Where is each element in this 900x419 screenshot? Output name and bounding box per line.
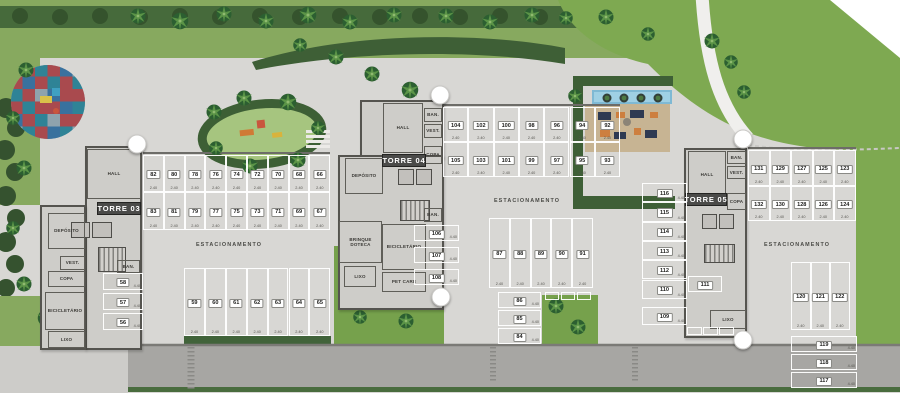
parking-space-131: 1312.40 xyxy=(748,150,770,186)
parking-space xyxy=(687,327,702,335)
stall-dimension: 2.40 xyxy=(545,171,568,175)
stall-dimension: 2.40 xyxy=(206,224,225,228)
parking-space-number: 81 xyxy=(168,208,181,217)
parking-space-62: 622.40 xyxy=(247,268,268,336)
parking-space-124: 1242.40 xyxy=(834,186,856,221)
estacionamento-label: ESTACIONAMENTO xyxy=(494,198,560,204)
parking-space-56: 564.40 xyxy=(103,313,143,330)
stall-dimension: 4.40 xyxy=(450,257,457,261)
parking-space-67: 672.40 xyxy=(309,192,330,230)
parking-space-number: 131 xyxy=(751,165,767,174)
parking-space-number: 85 xyxy=(513,315,526,324)
room-dep-sito: DEPÓSITO xyxy=(48,213,85,249)
estacionamento-label: ESTACIONAMENTO xyxy=(764,242,830,248)
parking-space-number: 119 xyxy=(816,341,832,350)
room-vest: VEST. xyxy=(727,166,746,179)
parking-space-98: 982.40 xyxy=(519,107,544,142)
location-marker[interactable] xyxy=(734,130,753,149)
stall-dimension: 4.40 xyxy=(678,254,685,258)
parking-space-58: 584.40 xyxy=(103,273,143,290)
stall-dimension: 2.40 xyxy=(814,180,834,184)
stall-dimension: 2.40 xyxy=(831,324,849,328)
parking-space-69: 692.40 xyxy=(289,192,310,230)
parking-space-number: 82 xyxy=(147,170,160,179)
parking-space-number: 62 xyxy=(251,299,264,308)
parking-space-number: 79 xyxy=(188,208,201,217)
parking-space-number: 109 xyxy=(656,313,672,322)
parking-space-number: 132 xyxy=(751,200,767,209)
room-hall: HALL xyxy=(87,149,141,199)
stall-dimension: 2.40 xyxy=(206,330,225,334)
parking-space-71: 712.40 xyxy=(268,192,289,230)
stall-dimension: 2.40 xyxy=(144,224,163,228)
parking-space-104: 1042.40 xyxy=(443,107,468,142)
stall-dimension: 2.40 xyxy=(749,215,769,219)
stall-dimension: 2.40 xyxy=(290,330,309,334)
parking-space-number: 90 xyxy=(555,250,568,259)
parking-space-83: 832.40 xyxy=(143,192,164,230)
room-brinque-doteca: BRINQUE DOTECA xyxy=(339,221,382,263)
parking-space-68: 682.40 xyxy=(289,155,310,192)
parking-space-72: 722.40 xyxy=(247,155,268,192)
stall-dimension: 2.40 xyxy=(290,224,309,228)
parking-space-97: 972.40 xyxy=(544,142,569,177)
parking-space-115: 1154.40 xyxy=(642,202,687,221)
parking-space-number: 72 xyxy=(251,170,264,179)
parking-space-number: 99 xyxy=(525,156,538,165)
room-biciclet-rio: BICICLETÁRIO xyxy=(45,292,85,330)
stall-dimension: 2.40 xyxy=(596,136,619,140)
room-hall: HALL xyxy=(383,103,423,153)
parking-space-111: 111 xyxy=(688,276,722,292)
parking-space-number: 86 xyxy=(513,297,526,306)
stall-dimension: 4.40 xyxy=(848,364,855,368)
stall-dimension: 4.40 xyxy=(678,216,685,220)
parking-space xyxy=(545,292,559,300)
location-marker[interactable] xyxy=(432,288,451,307)
parking-space-number: 115 xyxy=(656,208,672,217)
stall-dimension: 2.40 xyxy=(495,136,518,140)
parking-space-number: 73 xyxy=(251,208,264,217)
room-vest: VEST. xyxy=(60,256,85,270)
parking-space-number: 57 xyxy=(116,298,129,307)
parking-space-81: 812.40 xyxy=(164,192,185,230)
parking-space-number: 100 xyxy=(498,121,514,130)
parking-space-number: 110 xyxy=(656,286,672,295)
parking-space-number: 114 xyxy=(656,228,672,237)
stall-dimension: 2.40 xyxy=(771,180,791,184)
parking-space-78: 782.40 xyxy=(185,155,206,192)
parking-space-70: 702.40 xyxy=(268,155,289,192)
parking-space-number: 123 xyxy=(837,165,853,174)
parking-space-number: 102 xyxy=(473,121,489,130)
parking-space-60: 602.40 xyxy=(205,268,226,336)
stall-dimension: 2.40 xyxy=(545,136,568,140)
stall-dimension: 4.40 xyxy=(134,304,141,308)
parking-space-77: 772.40 xyxy=(205,192,226,230)
elevator-torre-05 xyxy=(702,214,717,229)
parking-space-64: 642.40 xyxy=(289,268,310,336)
parking-space-94: 942.40 xyxy=(570,107,595,142)
parking-space xyxy=(703,327,718,335)
parking-space-number: 97 xyxy=(550,156,563,165)
room-lixo: LIXO xyxy=(344,266,376,287)
parking-space-61: 612.40 xyxy=(226,268,247,336)
elevator-torre-04 xyxy=(416,169,432,185)
stall-dimension: 2.40 xyxy=(227,330,246,334)
stall-dimension: 2.40 xyxy=(812,324,830,328)
parking-space-number: 70 xyxy=(272,170,285,179)
parking-space-99: 992.40 xyxy=(519,142,544,177)
stall-dimension: 2.40 xyxy=(814,215,834,219)
room-copa: COPA xyxy=(48,271,85,287)
stall-dimension: 2.40 xyxy=(310,186,329,190)
parking-space-107: 1074.40 xyxy=(414,247,459,263)
parking-space-74: 742.40 xyxy=(226,155,247,192)
stall-dimension: 4.40 xyxy=(450,279,457,283)
parking-space-number: 74 xyxy=(230,170,243,179)
parking-space-117: 1174.40 xyxy=(791,372,857,388)
parking-space-number: 106 xyxy=(428,230,444,239)
location-marker[interactable] xyxy=(734,331,753,350)
parking-space-59: 592.40 xyxy=(184,268,205,336)
room-vest: VEST. xyxy=(424,124,442,138)
parking-space-125: 1252.40 xyxy=(813,150,835,186)
parking-space-108: 1084.40 xyxy=(414,269,459,285)
parking-space-number: 63 xyxy=(271,299,284,308)
parking-space-114: 1144.40 xyxy=(642,222,687,241)
location-marker[interactable] xyxy=(128,135,147,154)
parking-space-number: 94 xyxy=(576,121,589,130)
stall-dimension: 2.40 xyxy=(269,224,288,228)
room-dep-sito: DEPÓSITO xyxy=(345,158,383,194)
stall-dimension: 4.40 xyxy=(532,302,539,306)
parking-space-number: 117 xyxy=(816,377,832,386)
parking-space-number: 126 xyxy=(815,200,831,209)
parking-space-number: 107 xyxy=(428,252,444,261)
stall-dimension: 2.40 xyxy=(835,180,855,184)
stall-dimension: 2.40 xyxy=(248,330,267,334)
stall-dimension: 2.40 xyxy=(571,171,594,175)
parking-space-130: 1302.40 xyxy=(770,186,792,221)
stall-dimension: 2.40 xyxy=(206,186,225,190)
parking-space-91: 912.40 xyxy=(572,218,593,288)
stall-dimension: 4.40 xyxy=(848,382,855,386)
stall-dimension: 2.40 xyxy=(792,180,812,184)
stairs-torre-05 xyxy=(704,244,735,263)
parking-space-number: 120 xyxy=(793,293,809,302)
stall-dimension: 4.40 xyxy=(678,319,685,323)
parking-space-number: 68 xyxy=(292,170,305,179)
parking-space-number: 88 xyxy=(514,250,527,259)
stall-dimension: 2.40 xyxy=(185,330,204,334)
parking-space-number: 116 xyxy=(656,189,672,198)
parking-space-number: 103 xyxy=(473,156,489,165)
parking-space-number: 101 xyxy=(498,156,514,165)
parking-space-86: 864.40 xyxy=(498,292,541,308)
parking-space-number: 69 xyxy=(292,208,305,217)
parking-space-93: 932.40 xyxy=(595,142,620,177)
stall-dimension: 2.40 xyxy=(227,186,246,190)
parking-space-number: 87 xyxy=(493,250,506,259)
parking-space-number: 84 xyxy=(513,333,526,342)
parking-space-number: 121 xyxy=(812,293,828,302)
stall-dimension: 2.40 xyxy=(792,324,810,328)
parking-space-100: 1002.40 xyxy=(494,107,519,142)
parking-space-number: 77 xyxy=(209,208,222,217)
room-hall: HALL xyxy=(688,151,726,199)
parking-space-number: 113 xyxy=(656,247,672,256)
location-marker[interactable] xyxy=(431,86,450,105)
parking-space-110: 1104.40 xyxy=(642,280,687,299)
parking-space-number: 56 xyxy=(116,318,129,327)
stall-dimension: 2.40 xyxy=(165,224,184,228)
stall-dimension: 4.40 xyxy=(134,284,141,288)
stall-dimension: 2.40 xyxy=(749,180,769,184)
stall-dimension: 2.40 xyxy=(444,136,467,140)
stall-dimension: 2.40 xyxy=(511,282,530,286)
stall-dimension: 2.40 xyxy=(771,215,791,219)
parking-space-102: 1022.40 xyxy=(468,107,493,142)
parking-space xyxy=(577,292,591,300)
parking-space-number: 108 xyxy=(428,274,444,283)
stall-dimension: 4.40 xyxy=(678,196,685,200)
parking-space-number: 60 xyxy=(209,299,222,308)
parking-space-121: 1212.40 xyxy=(811,262,831,330)
stall-dimension: 2.40 xyxy=(792,215,812,219)
stall-dimension: 4.40 xyxy=(532,338,539,342)
parking-space-66: 662.40 xyxy=(309,155,330,192)
room-copa: COPA xyxy=(424,146,442,164)
parking-space-113: 1134.40 xyxy=(642,241,687,260)
parking-space-120: 1202.40 xyxy=(791,262,811,330)
parking-space-76: 762.40 xyxy=(205,155,226,192)
stall-dimension: 2.40 xyxy=(269,186,288,190)
parking-space-119: 1194.40 xyxy=(791,336,857,352)
stall-dimension: 4.40 xyxy=(450,235,457,239)
room-copa: COPA xyxy=(727,193,746,210)
room-lixo: LIXO xyxy=(48,331,85,348)
parking-space-80: 802.40 xyxy=(164,155,185,192)
parking-space-96: 962.40 xyxy=(544,107,569,142)
stall-dimension: 4.40 xyxy=(678,293,685,297)
stall-dimension: 2.40 xyxy=(469,171,492,175)
stall-dimension: 2.40 xyxy=(520,171,543,175)
elevator-torre-04 xyxy=(398,169,414,185)
elevator-torre-05 xyxy=(719,214,734,229)
parking-space-number: 129 xyxy=(772,165,788,174)
parking-space-number: 95 xyxy=(576,156,589,165)
stall-dimension: 2.40 xyxy=(520,136,543,140)
parking-space-127: 1272.40 xyxy=(791,150,813,186)
stall-dimension: 2.40 xyxy=(310,224,329,228)
parking-space-number: 104 xyxy=(447,121,463,130)
stall-dimension: 2.40 xyxy=(290,186,309,190)
parking-space-number: 118 xyxy=(816,359,832,368)
parking-space-number: 76 xyxy=(209,170,222,179)
parking-space-number: 64 xyxy=(292,299,305,308)
parking-space-number: 130 xyxy=(772,200,788,209)
parking-space-109: 1094.40 xyxy=(642,307,687,325)
parking-space-116: 1164.40 xyxy=(642,183,687,202)
stall-dimension: 4.40 xyxy=(134,324,141,328)
stall-dimension: 4.40 xyxy=(678,273,685,277)
stall-dimension: 2.40 xyxy=(165,186,184,190)
parking-space-95: 952.40 xyxy=(570,142,595,177)
stall-dimension: 2.40 xyxy=(573,282,592,286)
stall-dimension: 4.40 xyxy=(848,346,855,350)
tower-label-torre-03: TORRE 03 xyxy=(97,202,141,215)
parking-space-number: 67 xyxy=(313,208,326,217)
stall-dimension: 2.40 xyxy=(186,186,205,190)
parking-space-123: 1232.40 xyxy=(834,150,856,186)
stall-dimension: 2.40 xyxy=(490,282,509,286)
parking-space-number: 98 xyxy=(525,121,538,130)
parking-space-number: 122 xyxy=(832,293,848,302)
parking-space-63: 632.40 xyxy=(268,268,289,336)
parking-space-number: 80 xyxy=(168,170,181,179)
room-ban: BAN. xyxy=(117,260,140,273)
parking-space-57: 574.40 xyxy=(103,293,143,310)
stall-dimension: 2.40 xyxy=(227,224,246,228)
parking-space-122: 1222.40 xyxy=(830,262,850,330)
parking-space-89: 892.40 xyxy=(531,218,552,288)
site-plan: HALLDEPÓSITOVEST.COPABICICLETÁRIOLIXOBAN… xyxy=(0,0,900,419)
parking-space-number: 128 xyxy=(794,200,810,209)
tower-label-torre-04: TORRE 04 xyxy=(382,154,426,167)
parking-space-number: 83 xyxy=(147,208,160,217)
parking-space-65: 652.40 xyxy=(309,268,330,336)
elevator-torre-03 xyxy=(92,222,112,238)
parking-space-number: 93 xyxy=(601,156,614,165)
parking-space-number: 92 xyxy=(601,121,614,130)
parking-space-85: 854.40 xyxy=(498,310,541,326)
parking-space-number: 61 xyxy=(230,299,243,308)
plan-layer: HALLDEPÓSITOVEST.COPABICICLETÁRIOLIXOBAN… xyxy=(0,0,900,419)
parking-space-92: 922.40 xyxy=(595,107,620,142)
parking-space-90: 902.40 xyxy=(551,218,572,288)
stall-dimension: 2.40 xyxy=(596,171,619,175)
parking-space-number: 112 xyxy=(656,266,672,275)
stall-dimension: 2.40 xyxy=(186,224,205,228)
parking-space-number: 71 xyxy=(272,208,285,217)
parking-space-101: 1012.40 xyxy=(494,142,519,177)
parking-space-103: 1032.40 xyxy=(468,142,493,177)
parking-space-87: 872.40 xyxy=(489,218,510,288)
stall-dimension: 2.40 xyxy=(571,136,594,140)
parking-space-118: 1184.40 xyxy=(791,354,857,370)
stall-dimension: 2.40 xyxy=(248,186,267,190)
stall-dimension: 2.40 xyxy=(144,186,163,190)
parking-space-number: 89 xyxy=(534,250,547,259)
stall-dimension: 4.40 xyxy=(532,320,539,324)
stall-dimension: 2.40 xyxy=(552,282,571,286)
parking-space-105: 1052.40 xyxy=(443,142,468,177)
parking-space-79: 792.40 xyxy=(185,192,206,230)
parking-space-number: 78 xyxy=(188,170,201,179)
parking-space-number: 96 xyxy=(550,121,563,130)
parking-space-82: 822.40 xyxy=(143,155,164,192)
parking-space-number: 65 xyxy=(313,299,326,308)
parking-space-129: 1292.40 xyxy=(770,150,792,186)
estacionamento-label: ESTACIONAMENTO xyxy=(196,242,262,248)
parking-space xyxy=(719,327,734,335)
parking-space-number: 75 xyxy=(230,208,243,217)
tower-label-torre-05: TORRE 05 xyxy=(685,193,727,206)
parking-space-number: 125 xyxy=(815,165,831,174)
room-ban: BAN. xyxy=(424,208,442,222)
stall-dimension: 2.40 xyxy=(495,171,518,175)
room-ban: BAN. xyxy=(727,151,746,164)
parking-space-number: 59 xyxy=(188,299,201,308)
parking-space-112: 1124.40 xyxy=(642,260,687,279)
parking-space-128: 1282.40 xyxy=(791,186,813,221)
stall-dimension: 2.40 xyxy=(835,215,855,219)
parking-space xyxy=(561,292,575,300)
stall-dimension: 2.40 xyxy=(532,282,551,286)
stall-dimension: 2.40 xyxy=(248,224,267,228)
parking-space-73: 732.40 xyxy=(247,192,268,230)
parking-space-number: 127 xyxy=(794,165,810,174)
parking-space-132: 1322.40 xyxy=(748,186,770,221)
parking-space-number: 124 xyxy=(837,200,853,209)
stall-dimension: 2.40 xyxy=(469,136,492,140)
parking-space-number: 91 xyxy=(576,250,589,259)
parking-space-number: 66 xyxy=(313,170,326,179)
stall-dimension: 2.40 xyxy=(444,171,467,175)
parking-space-84: 844.40 xyxy=(498,328,541,344)
stall-dimension: 4.40 xyxy=(678,235,685,239)
parking-space-106: 1064.40 xyxy=(414,225,459,241)
parking-space-88: 882.40 xyxy=(510,218,531,288)
room-ban: BAN. xyxy=(424,108,442,122)
parking-space-number: 105 xyxy=(447,156,463,165)
parking-space-number: 58 xyxy=(116,278,129,287)
parking-space-126: 1262.40 xyxy=(813,186,835,221)
stall-dimension: 2.40 xyxy=(269,330,288,334)
stall-dimension: 2.40 xyxy=(310,330,329,334)
parking-space-75: 752.40 xyxy=(226,192,247,230)
parking-space-number: 111 xyxy=(697,281,713,290)
